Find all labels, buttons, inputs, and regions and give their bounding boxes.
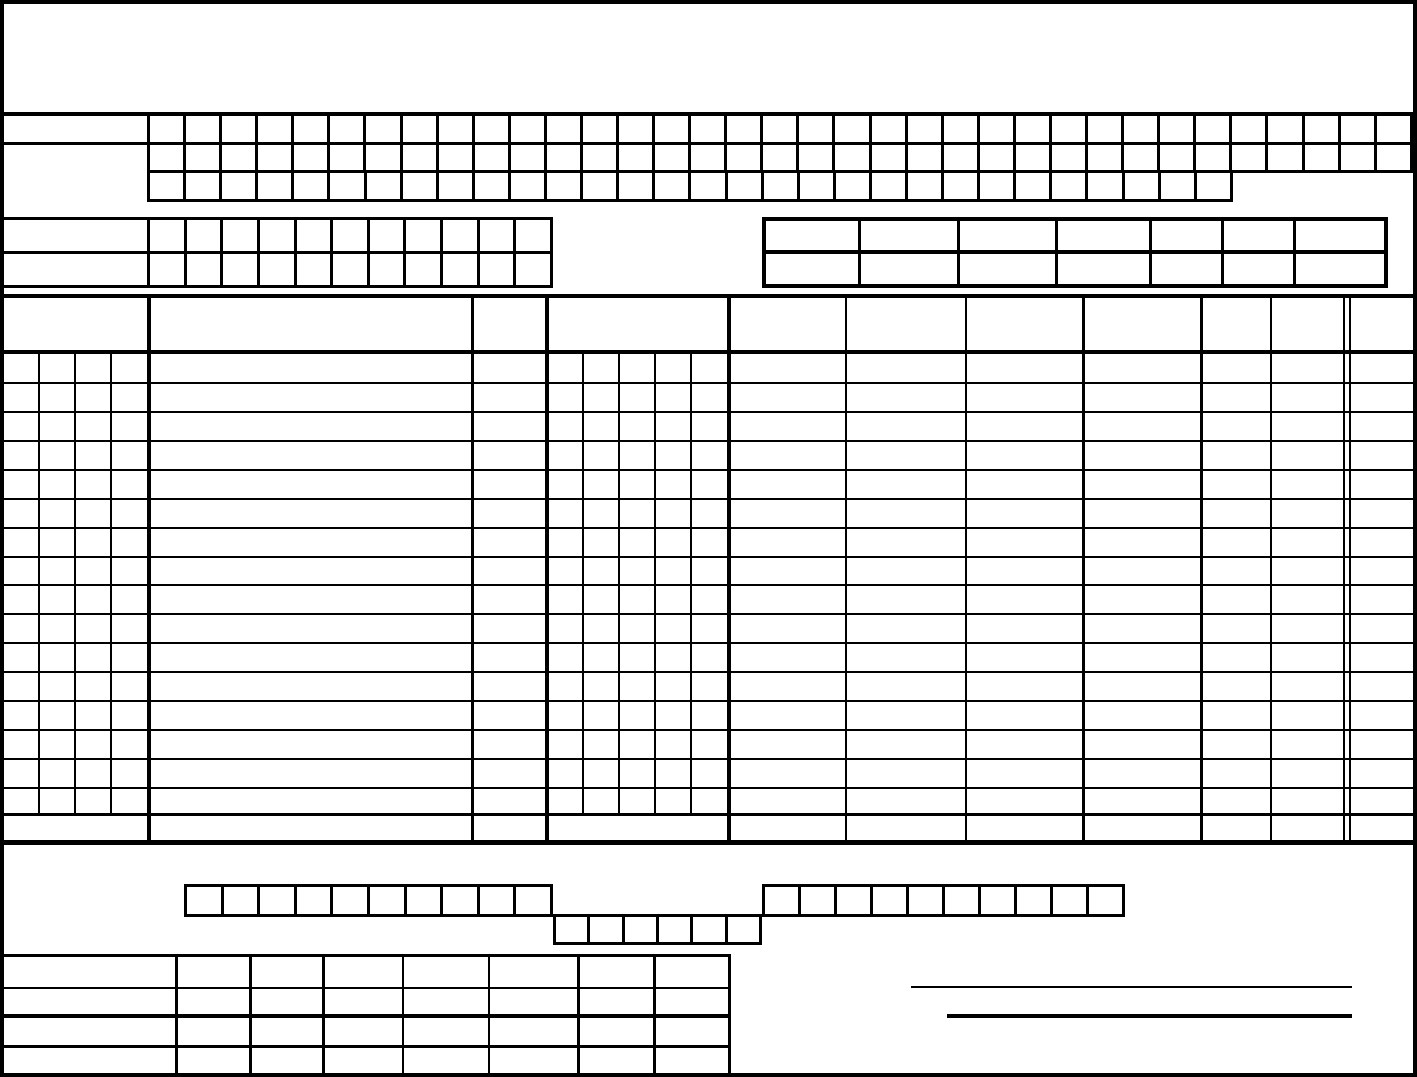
table-cell[interactable] bbox=[402, 1018, 488, 1045]
grid-cell[interactable] bbox=[220, 254, 257, 285]
table-cell[interactable] bbox=[175, 957, 249, 987]
top-right-table bbox=[762, 217, 1388, 288]
grid-cell[interactable] bbox=[652, 145, 688, 170]
table-row bbox=[0, 1045, 728, 1073]
grid-cell[interactable] bbox=[294, 887, 331, 914]
grid-cell[interactable] bbox=[556, 917, 587, 942]
grid-cell[interactable] bbox=[905, 115, 941, 142]
grid-cell[interactable] bbox=[1085, 173, 1121, 199]
grid-cell[interactable] bbox=[905, 173, 941, 199]
h-rule bbox=[0, 142, 150, 145]
grid-cell[interactable] bbox=[580, 145, 616, 170]
table-cell[interactable] bbox=[957, 254, 1055, 284]
grid-cell[interactable] bbox=[977, 115, 1013, 142]
grid-cell[interactable] bbox=[1302, 115, 1338, 142]
grid-cell[interactable] bbox=[1014, 887, 1050, 914]
v-rule bbox=[110, 350, 112, 815]
grid-cell[interactable] bbox=[1086, 887, 1122, 914]
v-rule bbox=[654, 350, 656, 815]
table-cell[interactable] bbox=[322, 957, 402, 987]
table-cell[interactable] bbox=[402, 1048, 488, 1073]
grid-cell[interactable] bbox=[150, 220, 184, 251]
table-cell[interactable] bbox=[577, 957, 653, 987]
table-cell[interactable] bbox=[0, 957, 175, 987]
table-cell[interactable] bbox=[488, 957, 577, 987]
bottom-grid-row-b bbox=[553, 914, 762, 945]
grid-cell[interactable] bbox=[652, 173, 688, 199]
grid-cell[interactable] bbox=[832, 145, 868, 170]
grid-cell[interactable] bbox=[587, 917, 621, 942]
grid-cell[interactable] bbox=[219, 145, 255, 170]
table-cell[interactable] bbox=[858, 221, 957, 250]
grid-cell[interactable] bbox=[508, 145, 544, 170]
grid-cell[interactable] bbox=[400, 145, 436, 170]
v-rule bbox=[1270, 294, 1272, 843]
grid-cell[interactable] bbox=[724, 145, 760, 170]
grid-cell[interactable] bbox=[219, 173, 255, 199]
grid-cell[interactable] bbox=[1013, 145, 1049, 170]
grid-cell[interactable] bbox=[477, 887, 514, 914]
table-row bbox=[0, 987, 728, 1015]
table-cell[interactable] bbox=[249, 1048, 322, 1073]
table-row bbox=[766, 221, 1384, 250]
v-rule bbox=[1343, 294, 1345, 843]
form-page bbox=[0, 0, 1417, 1077]
grid-cell[interactable] bbox=[472, 145, 508, 170]
grid-cell[interactable] bbox=[832, 115, 868, 142]
grid-cell[interactable] bbox=[183, 115, 219, 142]
table-cell[interactable] bbox=[322, 1048, 402, 1073]
v-rule bbox=[618, 350, 620, 815]
grid-cell[interactable] bbox=[656, 917, 690, 942]
grid-cell[interactable] bbox=[580, 173, 616, 199]
grid-cell[interactable] bbox=[183, 145, 219, 170]
grid-cell[interactable] bbox=[1049, 145, 1085, 170]
grid-cell[interactable] bbox=[977, 173, 1013, 199]
grid-cell[interactable] bbox=[219, 115, 255, 142]
grid-cell[interactable] bbox=[1013, 115, 1049, 142]
grid-cell[interactable] bbox=[724, 115, 760, 142]
table-cell[interactable] bbox=[766, 221, 858, 250]
grid-cell[interactable] bbox=[1121, 115, 1157, 142]
grid-cell[interactable] bbox=[652, 115, 688, 142]
table-row bbox=[766, 250, 1384, 284]
grid-cell[interactable] bbox=[797, 173, 833, 199]
table-cell[interactable] bbox=[577, 1018, 653, 1045]
h-rule bbox=[0, 294, 1417, 298]
grid-cell[interactable] bbox=[1157, 115, 1193, 142]
grid-cell[interactable] bbox=[477, 254, 514, 285]
signature-line-1[interactable] bbox=[911, 986, 1352, 988]
grid-cell[interactable] bbox=[508, 115, 544, 142]
table-cell[interactable] bbox=[488, 1018, 577, 1045]
grid-cell[interactable] bbox=[330, 220, 367, 251]
grid-cell[interactable] bbox=[796, 145, 832, 170]
grid-cell[interactable] bbox=[1049, 173, 1085, 199]
grid-cell[interactable] bbox=[183, 173, 219, 199]
h-rule bbox=[0, 217, 152, 220]
grid-cell[interactable] bbox=[257, 887, 294, 914]
grid-cell[interactable] bbox=[761, 173, 797, 199]
v-rule bbox=[471, 294, 474, 843]
grid-cell[interactable] bbox=[472, 173, 508, 199]
h-rule bbox=[0, 251, 150, 254]
grid-cell[interactable] bbox=[1158, 173, 1194, 199]
signature-line-2[interactable] bbox=[947, 1014, 1352, 1018]
table-cell[interactable] bbox=[249, 1018, 322, 1045]
grid-cell[interactable] bbox=[291, 145, 327, 170]
top-grid-row-2 bbox=[147, 142, 1413, 173]
table-cell[interactable] bbox=[1293, 254, 1384, 284]
table-cell[interactable] bbox=[1055, 254, 1149, 284]
grid-cell[interactable] bbox=[513, 887, 550, 914]
grid-cell[interactable] bbox=[400, 173, 436, 199]
grid-cell[interactable] bbox=[616, 115, 652, 142]
table-cell[interactable] bbox=[488, 1048, 577, 1073]
grid-cell[interactable] bbox=[363, 145, 399, 170]
grid-cell[interactable] bbox=[1302, 145, 1338, 170]
grid-cell[interactable] bbox=[403, 254, 440, 285]
v-rule bbox=[1200, 294, 1203, 843]
grid-cell[interactable] bbox=[327, 145, 363, 170]
grid-cell[interactable] bbox=[364, 173, 400, 199]
grid-cell[interactable] bbox=[291, 115, 327, 142]
grid-cell[interactable] bbox=[688, 145, 724, 170]
grid-cell[interactable] bbox=[150, 145, 183, 170]
grid-cell[interactable] bbox=[1265, 145, 1301, 170]
grid-cell[interactable] bbox=[255, 145, 291, 170]
table-cell[interactable] bbox=[653, 1018, 728, 1045]
grid-cell[interactable] bbox=[1122, 173, 1158, 199]
grid-cell[interactable] bbox=[367, 254, 404, 285]
table-cell[interactable] bbox=[653, 989, 728, 1015]
grid-cell[interactable] bbox=[220, 220, 257, 251]
grid-cell[interactable] bbox=[941, 173, 977, 199]
table-cell[interactable] bbox=[653, 1048, 728, 1073]
v-rule bbox=[1082, 294, 1085, 843]
grid-cell[interactable] bbox=[150, 254, 184, 285]
grid-cell[interactable] bbox=[257, 220, 294, 251]
grid-cell[interactable] bbox=[622, 917, 656, 942]
grid-cell[interactable] bbox=[977, 145, 1013, 170]
grid-cell[interactable] bbox=[1013, 173, 1049, 199]
grid-cell[interactable] bbox=[544, 173, 580, 199]
grid-cell[interactable] bbox=[834, 887, 870, 914]
grid-cell[interactable] bbox=[1374, 145, 1410, 170]
table-cell[interactable] bbox=[488, 989, 577, 1015]
grid-cell[interactable] bbox=[367, 220, 404, 251]
table-cell[interactable] bbox=[957, 221, 1055, 250]
grid-cell[interactable] bbox=[978, 887, 1014, 914]
bottom-grid-row-c bbox=[762, 884, 1125, 917]
grid-cell[interactable] bbox=[905, 145, 941, 170]
table-cell[interactable] bbox=[1055, 221, 1149, 250]
grid-cell[interactable] bbox=[440, 220, 477, 251]
grid-cell[interactable] bbox=[150, 115, 183, 142]
grid-cell[interactable] bbox=[472, 115, 508, 142]
table-cell[interactable] bbox=[1221, 254, 1293, 284]
h-rule bbox=[0, 285, 150, 288]
top-grid-row-1 bbox=[147, 112, 1413, 145]
grid-cell[interactable] bbox=[1193, 145, 1229, 170]
grid-cell[interactable] bbox=[257, 254, 294, 285]
grid-cell[interactable] bbox=[363, 115, 399, 142]
grid-cell[interactable] bbox=[255, 115, 291, 142]
table-cell[interactable] bbox=[175, 1048, 249, 1073]
table-cell[interactable] bbox=[1149, 254, 1221, 284]
v-rule bbox=[690, 350, 692, 815]
grid-cell[interactable] bbox=[616, 145, 652, 170]
grid-cell[interactable] bbox=[477, 220, 514, 251]
grid-cell[interactable] bbox=[436, 115, 472, 142]
grid-cell[interactable] bbox=[367, 887, 404, 914]
table-cell[interactable] bbox=[0, 1018, 175, 1045]
grid-cell[interactable] bbox=[330, 254, 367, 285]
grid-cell[interactable] bbox=[327, 173, 363, 199]
grid-cell[interactable] bbox=[1193, 115, 1229, 142]
table-cell[interactable] bbox=[175, 1018, 249, 1045]
grid-cell[interactable] bbox=[327, 115, 363, 142]
v-rule bbox=[545, 294, 549, 843]
v-rule bbox=[74, 350, 76, 815]
table-cell[interactable] bbox=[1221, 221, 1293, 250]
table-cell[interactable] bbox=[1149, 221, 1221, 250]
grid-cell[interactable] bbox=[150, 173, 183, 199]
grid-cell[interactable] bbox=[184, 220, 221, 251]
grid-cell[interactable] bbox=[255, 173, 291, 199]
grid-cell[interactable] bbox=[869, 145, 905, 170]
table-cell[interactable] bbox=[766, 254, 858, 284]
grid-cell[interactable] bbox=[941, 115, 977, 142]
table-cell[interactable] bbox=[175, 989, 249, 1015]
grid-cell[interactable] bbox=[688, 115, 724, 142]
grid-cell[interactable] bbox=[291, 173, 327, 199]
table-cell[interactable] bbox=[322, 989, 402, 1015]
grid-cell[interactable] bbox=[869, 115, 905, 142]
top-grid-row-3 bbox=[147, 170, 1233, 202]
grid-cell[interactable] bbox=[941, 145, 977, 170]
grid-cell[interactable] bbox=[1265, 115, 1301, 142]
grid-cell[interactable] bbox=[760, 115, 796, 142]
grid-cell[interactable] bbox=[725, 917, 759, 942]
grid-cell[interactable] bbox=[1229, 145, 1265, 170]
grid-cell[interactable] bbox=[906, 887, 942, 914]
grid-cell[interactable] bbox=[403, 220, 440, 251]
bottom-left-table bbox=[0, 954, 731, 1073]
grid-cell[interactable] bbox=[725, 173, 761, 199]
table-cell[interactable] bbox=[402, 957, 488, 987]
mid-grid-row-2 bbox=[147, 251, 553, 288]
grid-cell[interactable] bbox=[436, 173, 472, 199]
grid-cell[interactable] bbox=[544, 145, 580, 170]
v-rule bbox=[965, 294, 967, 843]
grid-cell[interactable] bbox=[690, 917, 724, 942]
grid-cell[interactable] bbox=[1049, 115, 1085, 142]
grid-cell[interactable] bbox=[1338, 115, 1374, 142]
grid-cell[interactable] bbox=[1194, 173, 1230, 199]
table-cell[interactable] bbox=[653, 957, 728, 987]
grid-cell[interactable] bbox=[765, 887, 798, 914]
grid-cell[interactable] bbox=[1085, 115, 1121, 142]
grid-cell[interactable] bbox=[184, 254, 221, 285]
v-rule bbox=[147, 294, 151, 843]
header-blank-area bbox=[0, 0, 1417, 112]
table-cell[interactable] bbox=[0, 1048, 175, 1073]
grid-cell[interactable] bbox=[436, 145, 472, 170]
v-rule bbox=[845, 294, 847, 843]
table-row bbox=[0, 957, 728, 987]
v-rule bbox=[1349, 294, 1351, 843]
grid-cell[interactable] bbox=[1338, 145, 1374, 170]
grid-cell[interactable] bbox=[942, 887, 978, 914]
v-rule bbox=[582, 350, 584, 815]
grid-cell[interactable] bbox=[870, 887, 906, 914]
grid-cell[interactable] bbox=[760, 145, 796, 170]
table-cell[interactable] bbox=[402, 989, 488, 1015]
grid-cell[interactable] bbox=[513, 254, 550, 285]
v-rule bbox=[727, 294, 731, 843]
grid-cell[interactable] bbox=[544, 115, 580, 142]
grid-cell[interactable] bbox=[796, 115, 832, 142]
table-cell[interactable] bbox=[858, 254, 957, 284]
table-cell[interactable] bbox=[322, 1018, 402, 1045]
grid-cell[interactable] bbox=[1085, 145, 1121, 170]
table-cell[interactable] bbox=[577, 989, 653, 1015]
table-cell[interactable] bbox=[1293, 221, 1384, 250]
grid-cell[interactable] bbox=[440, 887, 477, 914]
grid-cell[interactable] bbox=[1050, 887, 1086, 914]
grid-cell[interactable] bbox=[616, 173, 652, 199]
h-rule bbox=[0, 112, 1417, 116]
grid-cell[interactable] bbox=[798, 887, 834, 914]
grid-cell[interactable] bbox=[508, 173, 544, 199]
v-rule bbox=[38, 350, 40, 815]
table-cell[interactable] bbox=[0, 989, 175, 1015]
grid-cell[interactable] bbox=[400, 115, 436, 142]
grid-cell[interactable] bbox=[688, 173, 724, 199]
grid-cell[interactable] bbox=[294, 254, 331, 285]
grid-cell[interactable] bbox=[580, 115, 616, 142]
mid-grid-row-1 bbox=[147, 217, 553, 254]
grid-cell[interactable] bbox=[1121, 145, 1157, 170]
grid-cell[interactable] bbox=[1374, 115, 1410, 142]
grid-cell[interactable] bbox=[221, 887, 258, 914]
table-cell[interactable] bbox=[249, 957, 322, 987]
main-table-region[interactable] bbox=[0, 294, 1417, 845]
grid-cell[interactable] bbox=[440, 254, 477, 285]
table-row bbox=[0, 1014, 728, 1045]
table-cell[interactable] bbox=[577, 1048, 653, 1073]
table-cell[interactable] bbox=[249, 989, 322, 1015]
grid-cell[interactable] bbox=[513, 220, 550, 251]
grid-cell[interactable] bbox=[833, 173, 869, 199]
h-rule bbox=[0, 840, 1417, 845]
grid-cell[interactable] bbox=[404, 887, 441, 914]
grid-cell[interactable] bbox=[1229, 115, 1265, 142]
grid-cell[interactable] bbox=[187, 887, 221, 914]
grid-cell[interactable] bbox=[330, 887, 367, 914]
grid-cell[interactable] bbox=[1157, 145, 1193, 170]
grid-cell[interactable] bbox=[869, 173, 905, 199]
bottom-grid-row-a bbox=[184, 884, 553, 917]
grid-cell[interactable] bbox=[294, 220, 331, 251]
